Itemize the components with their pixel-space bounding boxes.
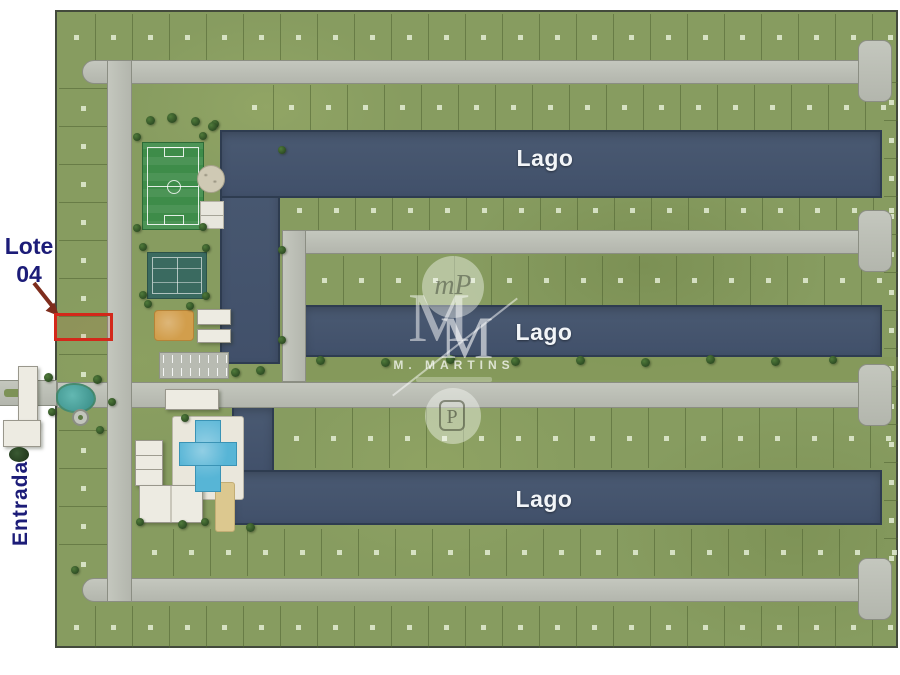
lot-column-east bbox=[884, 82, 898, 576]
master-plan: Lago Lago Lago bbox=[55, 10, 898, 648]
tree bbox=[202, 244, 210, 252]
tree bbox=[44, 373, 53, 382]
party-hall-building bbox=[139, 485, 203, 523]
tree bbox=[771, 357, 780, 366]
tree bbox=[208, 122, 217, 131]
tree bbox=[641, 358, 650, 367]
tree bbox=[316, 356, 325, 365]
lot-row-below-lake-bottom bbox=[137, 529, 898, 576]
tree bbox=[93, 375, 102, 384]
tree bbox=[511, 357, 520, 366]
tree bbox=[381, 358, 390, 367]
tree bbox=[108, 398, 116, 406]
tree bbox=[133, 224, 141, 232]
site-plan-canvas: Lago Lago Lago Lote 04 Entrada mP M M M.… bbox=[0, 0, 900, 675]
soccer-field-lines bbox=[147, 147, 199, 225]
gatehouse-annex bbox=[3, 420, 41, 447]
road-second bbox=[287, 230, 864, 254]
tree bbox=[71, 566, 79, 574]
service-building bbox=[197, 329, 231, 343]
gatehouse bbox=[18, 366, 38, 428]
lot-row-top bbox=[59, 14, 896, 60]
soccer-field bbox=[142, 142, 204, 230]
tree bbox=[136, 518, 144, 526]
road-top bbox=[82, 60, 864, 84]
entrance-label: Entrada bbox=[9, 461, 33, 546]
lake-bottom-label: Lago bbox=[494, 486, 594, 513]
locker-building bbox=[135, 440, 163, 486]
tree bbox=[133, 133, 141, 141]
green-strip-below-lake-middle bbox=[304, 357, 898, 380]
road-second-branch bbox=[282, 230, 306, 382]
tree bbox=[146, 116, 155, 125]
tree bbox=[139, 291, 147, 299]
entrance-shrub bbox=[9, 447, 29, 462]
tree bbox=[278, 336, 286, 344]
tree bbox=[231, 368, 240, 377]
tree bbox=[202, 292, 210, 300]
roundabout bbox=[72, 409, 89, 426]
tree bbox=[246, 523, 255, 532]
sports-court bbox=[147, 252, 207, 299]
garden-rock-circle bbox=[197, 165, 225, 193]
lot-row-below-central-road bbox=[279, 408, 898, 468]
tree bbox=[96, 426, 104, 434]
tree bbox=[178, 520, 187, 529]
tree bbox=[186, 302, 194, 310]
road-bottom bbox=[82, 578, 864, 602]
sports-court-lines bbox=[152, 257, 202, 294]
parking-lot bbox=[159, 352, 229, 379]
clubhouse-building bbox=[197, 309, 231, 325]
tree bbox=[199, 223, 207, 231]
tree bbox=[48, 408, 56, 416]
tree bbox=[139, 243, 147, 251]
tree bbox=[278, 146, 286, 154]
tree bbox=[446, 355, 455, 364]
tree bbox=[576, 356, 585, 365]
lake-middle-label: Lago bbox=[494, 319, 594, 346]
entrance-pond bbox=[56, 383, 96, 413]
playground bbox=[154, 310, 194, 341]
tree bbox=[199, 132, 207, 140]
road-top-turnaround bbox=[858, 40, 892, 102]
tree bbox=[829, 356, 837, 364]
tree bbox=[181, 414, 189, 422]
callout-line1: Lote bbox=[0, 233, 58, 261]
road-second-turnaround bbox=[858, 210, 892, 272]
tree bbox=[256, 366, 265, 375]
lot-04-highlight bbox=[54, 313, 113, 341]
lot-row-above-lake-top bbox=[237, 85, 898, 130]
lot-row-bottom bbox=[59, 606, 896, 648]
tree bbox=[191, 117, 200, 126]
tree bbox=[167, 113, 177, 123]
road-bottom-turnaround bbox=[858, 558, 892, 620]
reception-building bbox=[165, 389, 219, 410]
swimming-pool-wing bbox=[179, 442, 237, 466]
tree bbox=[144, 300, 152, 308]
tree bbox=[706, 355, 715, 364]
lake-top-label: Lago bbox=[495, 145, 595, 172]
tree bbox=[201, 518, 209, 526]
road-central-turnaround bbox=[858, 364, 892, 426]
tree bbox=[278, 246, 286, 254]
lot-row-above-lake-middle bbox=[307, 256, 898, 305]
